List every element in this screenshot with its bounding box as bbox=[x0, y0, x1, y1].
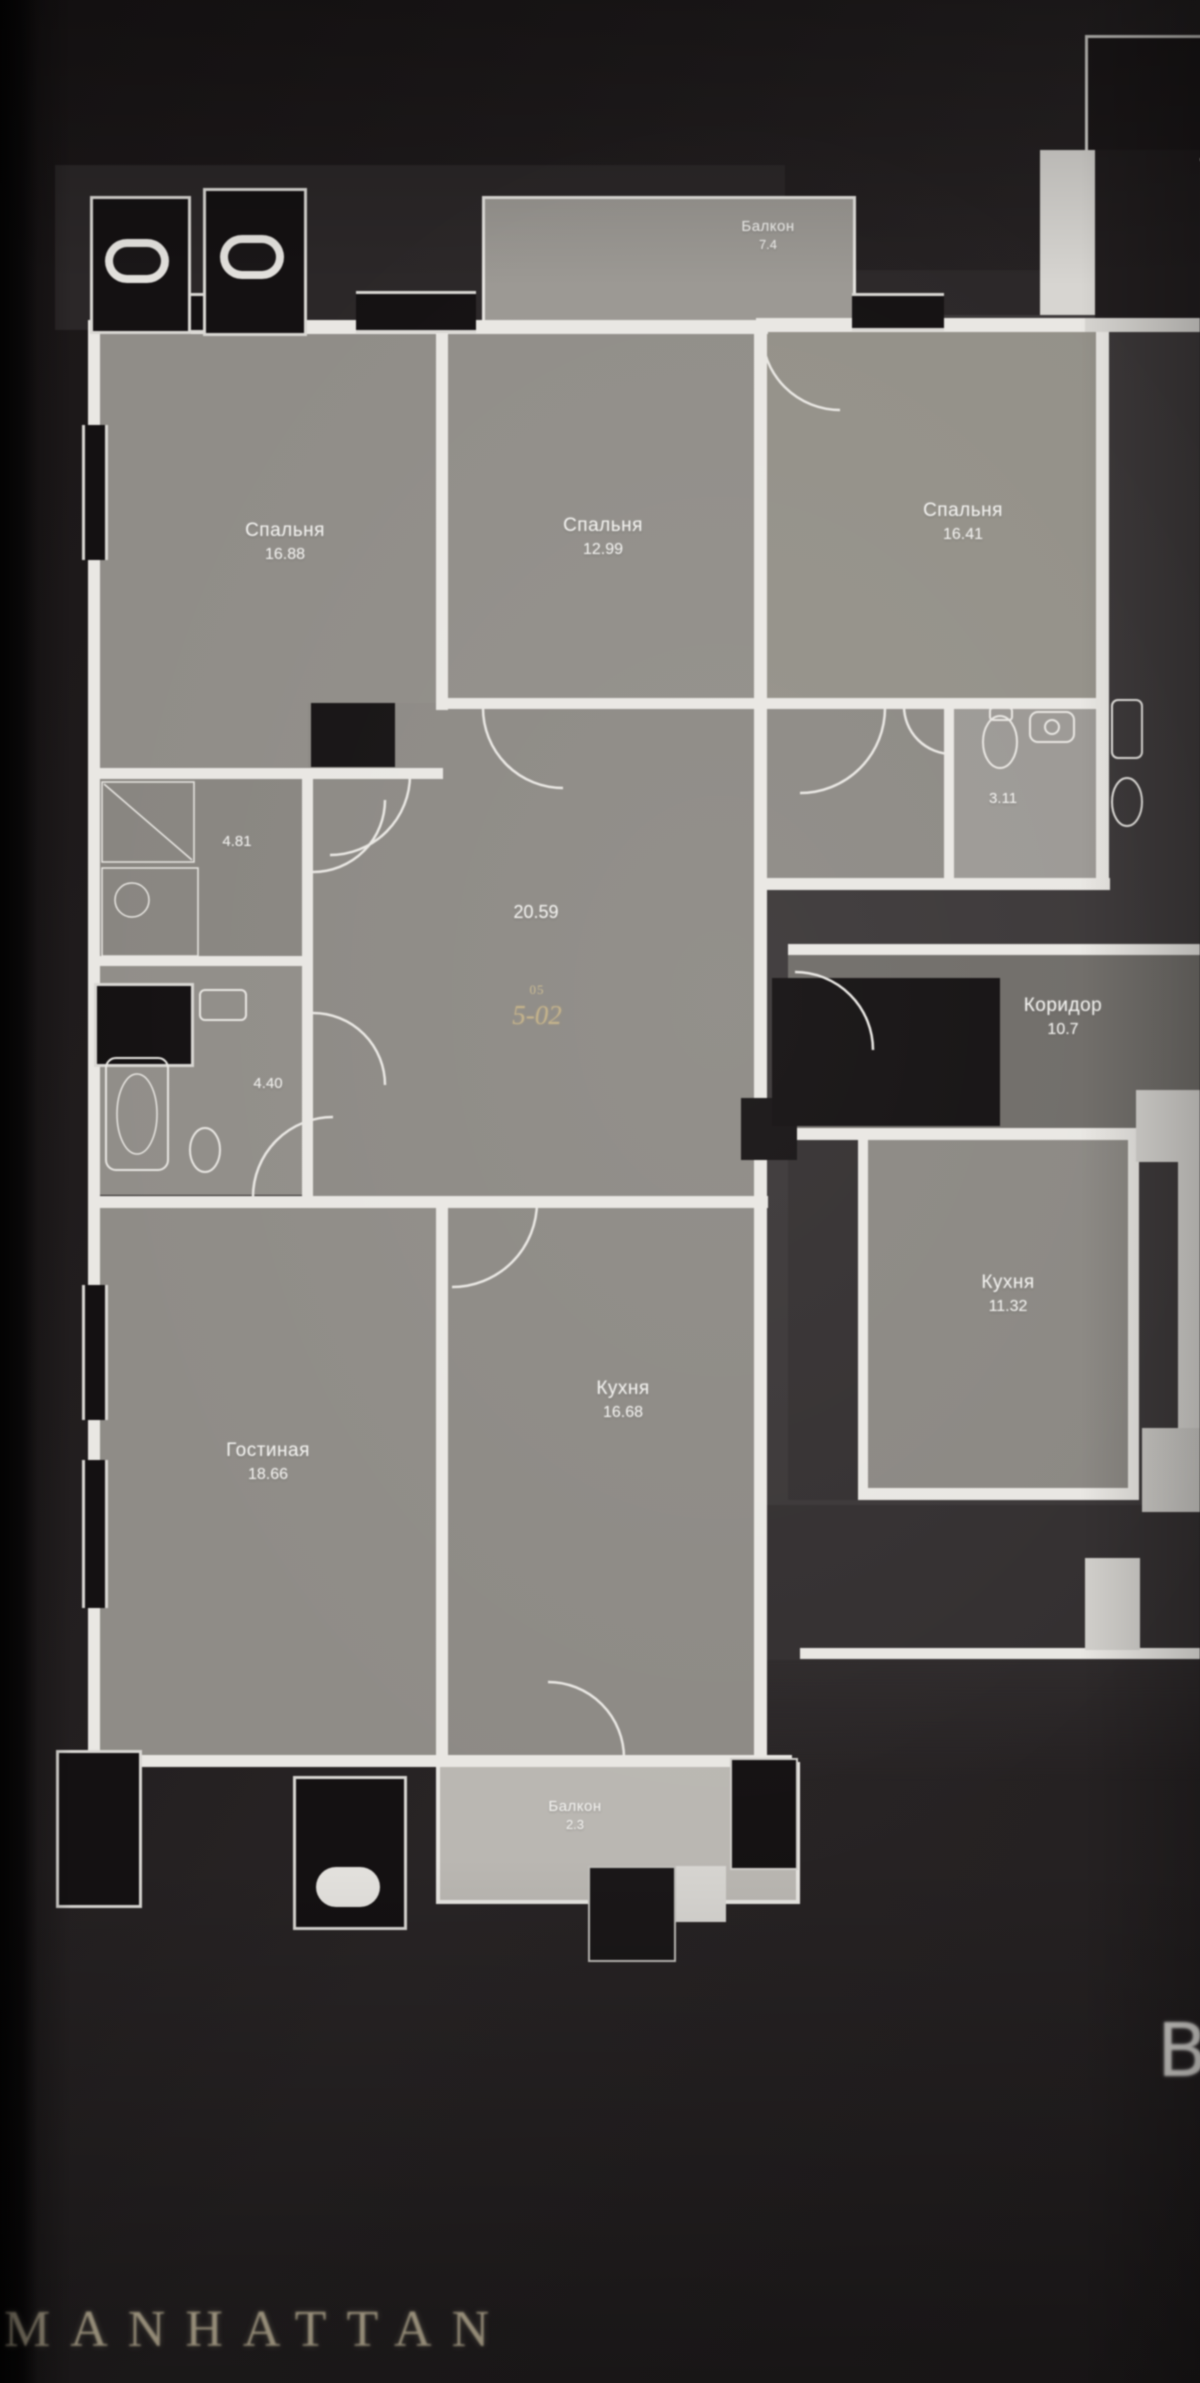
room-area: 10.7 bbox=[983, 1021, 1143, 1039]
unit-number: 5-02 bbox=[472, 1000, 602, 1031]
hall-area-label: 20.59 bbox=[466, 902, 606, 923]
room-name: Балкон bbox=[688, 218, 848, 235]
unit-number-small: 05 bbox=[472, 982, 602, 998]
room-name: Коридор bbox=[983, 995, 1143, 1017]
room-label-bedroom-1: Спальня 16.88 bbox=[200, 520, 370, 564]
room-area: 4.40 bbox=[253, 1075, 282, 1092]
room-label-balcony-bottom: Балкон 2.3 bbox=[495, 1798, 655, 1832]
room-label-kitchen-neighbor: Кухня 11.32 bbox=[928, 1272, 1088, 1316]
plan-linework bbox=[0, 0, 1200, 2383]
room-area: 7.4 bbox=[688, 237, 848, 252]
brochure-page: Спальня 16.88 Спальня 12.99 Спальня 16.4… bbox=[0, 0, 1200, 2383]
room-area: 16.41 bbox=[878, 526, 1048, 544]
room-area: 16.68 bbox=[538, 1404, 708, 1422]
fixtures bbox=[102, 700, 1142, 1172]
room-area: 16.88 bbox=[200, 546, 370, 564]
room-name: Балкон bbox=[495, 1798, 655, 1815]
bathroom-area-label: 4.40 bbox=[218, 1075, 318, 1092]
storage-area-label: 4.81 bbox=[187, 833, 287, 850]
room-name: Кухня bbox=[928, 1272, 1088, 1294]
room-area: 11.32 bbox=[928, 1298, 1088, 1316]
room-name: Кухня bbox=[538, 1378, 708, 1400]
room-label-bedroom-3: Спальня 16.41 bbox=[878, 500, 1048, 544]
brand-wordmark: MANHATTAN bbox=[4, 2300, 509, 2359]
unit-number-badge: 05 5-02 bbox=[472, 982, 602, 1031]
room-name: Спальня bbox=[878, 500, 1048, 522]
floor-plan: Спальня 16.88 Спальня 12.99 Спальня 16.4… bbox=[0, 0, 1200, 2383]
room-label-bedroom-2: Спальня 12.99 bbox=[518, 515, 688, 559]
room-label-balcony-top: Балкон 7.4 bbox=[688, 218, 848, 252]
room-area: 2.3 bbox=[495, 1817, 655, 1832]
hall-area: 20.59 bbox=[513, 902, 558, 922]
room-label-living: Гостиная 18.66 bbox=[183, 1440, 353, 1484]
block-letter: B bbox=[1157, 2008, 1200, 2094]
wc-area-label: 3.11 bbox=[953, 790, 1053, 807]
room-area: 3.11 bbox=[989, 790, 1017, 807]
room-area: 4.81 bbox=[222, 833, 251, 850]
room-label-kitchen: Кухня 16.68 bbox=[538, 1378, 708, 1422]
room-name: Спальня bbox=[518, 515, 688, 537]
room-area: 18.66 bbox=[183, 1466, 353, 1484]
room-label-corridor-neighbor: Коридор 10.7 bbox=[983, 995, 1143, 1039]
room-area: 12.99 bbox=[518, 541, 688, 559]
room-name: Гостиная bbox=[183, 1440, 353, 1462]
room-name: Спальня bbox=[200, 520, 370, 542]
